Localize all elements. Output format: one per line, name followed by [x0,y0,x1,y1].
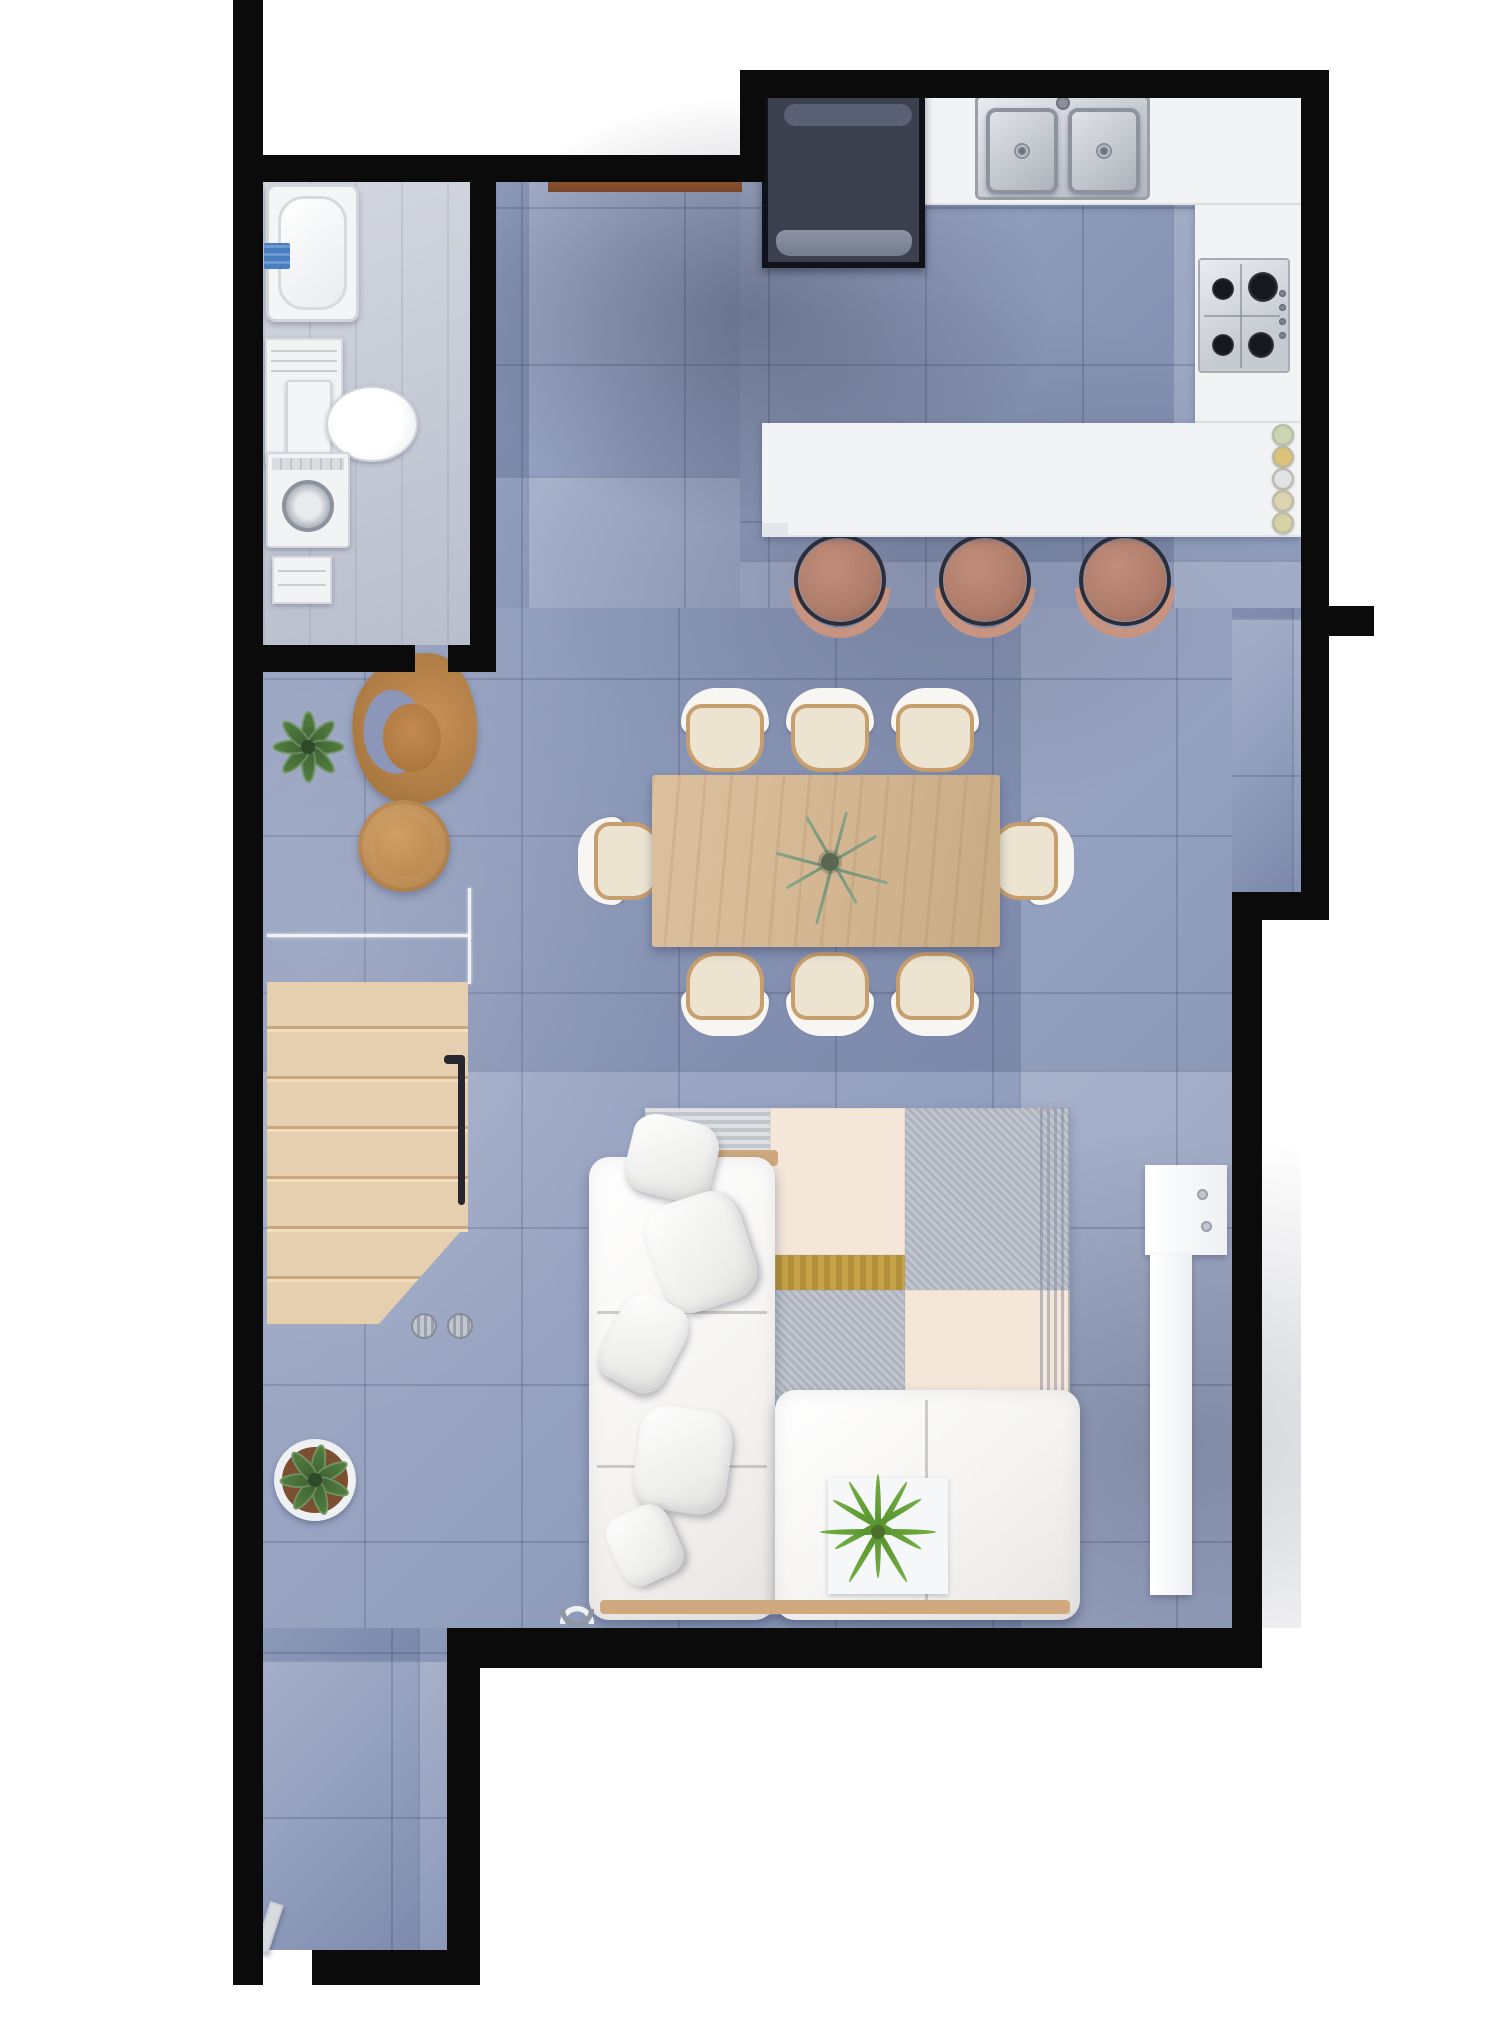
plate [1272,512,1294,534]
refrigerator [762,88,925,268]
staircase-upper-flight [267,982,468,1232]
plant-center [308,1473,322,1487]
rug-gold-band [770,1255,905,1290]
chair-cushion [686,952,764,1020]
toilet-bowl [326,386,418,462]
sink-basin-left [986,108,1058,194]
decor-cylinder [411,1313,437,1339]
faucet [1056,96,1070,110]
burner [1212,278,1234,300]
cooktop-knob [1279,318,1286,325]
plant-center [301,740,315,754]
burner [1212,334,1234,356]
sink-drain [1014,143,1030,159]
washing-machine [266,452,350,548]
burner [1248,272,1278,302]
round-side-table [358,800,450,892]
console-cabinet [1145,1165,1227,1255]
chair-cushion [896,704,974,772]
floor-right-strip [1232,608,1301,892]
kitchen-sink [975,95,1150,200]
fern-center [871,1525,885,1539]
wall-bottom-left-a [233,1950,262,1985]
wall-bottom-left-b [312,1950,480,1985]
decor-cylinder [447,1313,473,1339]
wall-corridor-vertical [447,1628,480,1985]
island-breakfast-bar [762,423,1301,537]
chair-cushion [686,704,764,772]
wall-bathroom-top [263,155,765,182]
wall-bathroom-bottom-b [448,645,496,672]
chair-cushion [990,822,1058,900]
cooktop-knob [1279,304,1286,311]
wall-bathroom-bottom-a [233,645,415,672]
plate [1272,490,1294,512]
console-knob [1197,1189,1208,1200]
wall-bottom-living [447,1628,1262,1668]
dining-chair-south [784,948,876,1036]
bar-stool [931,528,1039,646]
bar-stool [1071,528,1179,646]
shelf-line [271,350,337,352]
chair-cushion [791,952,869,1020]
chair-cushion [791,704,869,772]
gas-cooktop [1198,258,1290,373]
console-knob [1201,1221,1212,1232]
chair-cushion [896,952,974,1020]
console-shelf-strip [1150,1255,1192,1595]
rug-cream-block [770,1108,905,1255]
sink-basin-right [1068,108,1140,194]
cooktop-grate [1204,315,1280,317]
plate [1272,446,1294,468]
dining-chair-north [784,688,876,776]
plate [1272,424,1294,446]
sink-drain [1096,143,1112,159]
bar-stool [786,528,894,646]
dining-chair-north [679,688,771,776]
shelf-line [271,360,337,362]
shelf-line [271,370,337,372]
washer-drum [282,480,334,532]
fridge-handle [784,104,912,126]
fridge-base [776,230,912,256]
shelf-line [278,570,326,572]
cooktop-grate [1240,264,1242,368]
dining-chair-south [889,948,981,1036]
wall-right-upper [1301,70,1329,920]
fringe-wave [560,1609,594,1627]
towel [264,243,290,269]
stool-seat [799,539,881,621]
dining-chair-north [889,688,981,776]
floor-bottom-corridor [263,1628,447,1950]
wall-right-notch [1329,606,1374,636]
shelf-line [278,584,326,586]
stool-seat [944,539,1026,621]
wall-bathroom-right [470,155,496,672]
stool-seat [1084,539,1166,621]
washer-control-panel [272,458,344,470]
centerpiece-pot [821,853,839,871]
handrail-hook [444,1055,465,1064]
plate [1272,468,1294,490]
island-step [762,523,788,537]
handrail [458,1055,465,1205]
burner [1248,332,1274,358]
wall-right-lower [1232,892,1262,1668]
cooktop-knob [1279,290,1286,297]
dining-chair-south [679,948,771,1036]
throw-pillow [629,1402,737,1518]
floor-plan [0,0,1488,2029]
glass-balustrade-vertical [468,888,471,984]
glass-balustrade-horizontal [267,934,470,937]
cooktop-knob [1279,332,1286,339]
wall-top [740,70,1329,98]
laundry-rack [272,556,332,604]
plant-mat [828,1478,948,1594]
wall-left-outer [233,0,263,1985]
fringe-row [560,1606,1270,1630]
